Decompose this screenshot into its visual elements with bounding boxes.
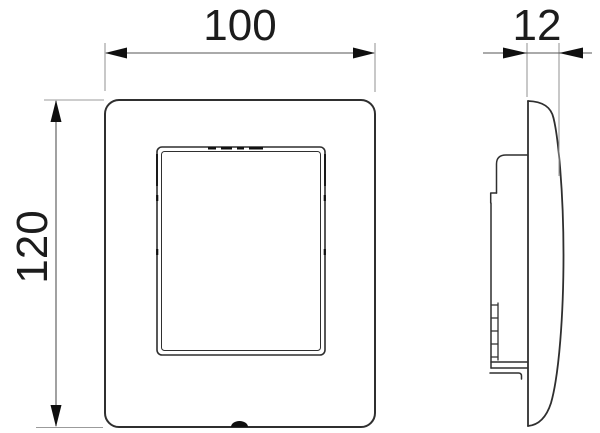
width-dimension-label: 100: [203, 1, 276, 50]
dimension-thickness: 12: [483, 1, 592, 176]
height-arrowhead-bottom-icon: [51, 405, 62, 427]
dimension-drawing: 100 120 12: [0, 0, 600, 433]
bracket-step-edge: [491, 193, 497, 368]
bracket-rack-teeth: [491, 305, 498, 357]
front-view: [105, 100, 375, 427]
width-arrowhead-left-icon: [105, 48, 127, 59]
dimension-drawing-page: 100 120 12: [0, 0, 600, 433]
height-dimension-label: 120: [8, 210, 57, 283]
bracket-foot-lip: [490, 373, 522, 379]
bracket-foot: [491, 362, 527, 368]
side-view: [490, 101, 564, 426]
dimension-height: 120: [8, 100, 104, 428]
thickness-arrowhead-right-icon: [559, 48, 583, 59]
bracket-top-hook: [497, 155, 528, 193]
thickness-extension-lines: [527, 43, 559, 176]
side-plate-front-profile: [528, 101, 564, 426]
width-arrowhead-right-icon: [353, 48, 375, 59]
width-extension-lines: [105, 43, 375, 92]
height-arrowhead-top-icon: [51, 100, 62, 122]
thickness-dimension-label: 12: [513, 1, 562, 50]
dimension-width: 100: [105, 1, 375, 92]
